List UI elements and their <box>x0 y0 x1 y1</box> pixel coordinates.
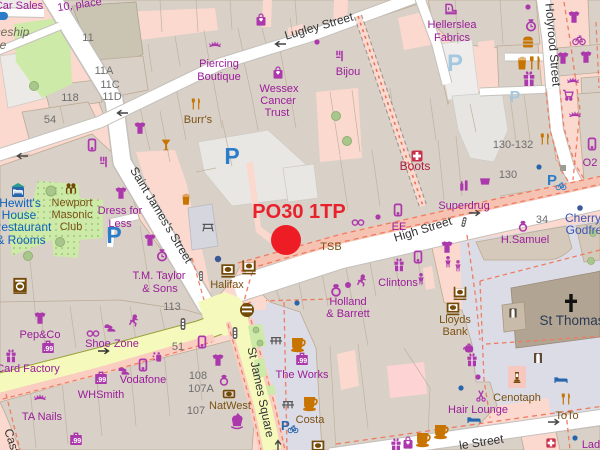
svg-text:e: e <box>0 38 7 52</box>
svg-text:Hair Lounge: Hair Lounge <box>448 404 508 416</box>
svg-text:130-132: 130-132 <box>493 139 533 151</box>
svg-text:TA Nails: TA Nails <box>22 411 63 423</box>
svg-text:WHSmith: WHSmith <box>78 389 124 401</box>
svg-text:11D: 11D <box>102 91 121 103</box>
svg-text:TSB: TSB <box>320 241 341 253</box>
svg-text:T.M. Taylor: T.M. Taylor <box>133 270 186 282</box>
svg-text:Fabrics: Fabrics <box>434 32 471 44</box>
svg-text:Club: Club <box>60 221 83 233</box>
svg-text:Newport: Newport <box>52 197 93 209</box>
svg-text:EE: EE <box>392 221 407 233</box>
svg-text:11: 11 <box>82 32 93 44</box>
svg-text:ToTo: ToTo <box>555 410 578 422</box>
svg-text:Cenotaph: Cenotaph <box>493 392 541 404</box>
svg-text:Shoe Zone: Shoe Zone <box>85 338 139 350</box>
svg-text:Less: Less <box>108 218 132 230</box>
svg-text:P: P <box>281 418 290 433</box>
svg-text:Holland: Holland <box>329 296 366 308</box>
svg-text:Dress for: Dress for <box>98 205 143 217</box>
svg-text:11A: 11A <box>95 65 114 77</box>
svg-text:Masonic: Masonic <box>52 209 93 221</box>
svg-text:P: P <box>224 143 239 169</box>
svg-text:P: P <box>547 172 557 189</box>
svg-text:P: P <box>447 50 463 77</box>
svg-text:Wessex: Wessex <box>260 83 299 95</box>
svg-text:Clintons: Clintons <box>378 277 418 289</box>
svg-text:Lad: Lad <box>582 439 600 450</box>
svg-text:34: 34 <box>536 214 548 226</box>
svg-text:Boutique: Boutique <box>197 71 240 83</box>
svg-text:Bank: Bank <box>442 326 468 338</box>
svg-text:54: 54 <box>44 114 56 126</box>
svg-text:NatWest: NatWest <box>209 400 251 412</box>
svg-text:& Sons: & Sons <box>142 283 178 295</box>
svg-text:Trust: Trust <box>265 107 290 119</box>
svg-text:Restaurant: Restaurant <box>0 220 52 234</box>
svg-text:113: 113 <box>163 301 181 313</box>
svg-text:ceship: ceship <box>0 25 30 39</box>
svg-text:Hellerslea: Hellerslea <box>428 19 478 31</box>
svg-text:Lloyds: Lloyds <box>439 314 471 326</box>
svg-text:PO30 1TP: PO30 1TP <box>252 201 345 223</box>
svg-text:107: 107 <box>187 405 205 417</box>
svg-text:Godfrey: Godfrey <box>566 223 600 237</box>
svg-text:Card Factory: Card Factory <box>0 363 60 375</box>
svg-text:51: 51 <box>172 341 184 353</box>
svg-text:Superdrug: Superdrug <box>438 200 489 212</box>
svg-text:108: 108 <box>189 370 207 382</box>
svg-text:H.Samuel: H.Samuel <box>501 234 549 246</box>
svg-text:P: P <box>510 89 521 106</box>
svg-text:Pep&Co: Pep&Co <box>20 329 61 341</box>
svg-text:11C: 11C <box>100 79 119 91</box>
svg-text:Piercing: Piercing <box>199 58 239 70</box>
svg-text:& Rooms: & Rooms <box>0 233 46 247</box>
svg-text:Cancer: Cancer <box>260 95 296 107</box>
svg-text:O2: O2 <box>583 157 598 169</box>
svg-text:Bijou: Bijou <box>336 66 360 78</box>
svg-text:107A: 107A <box>188 383 214 395</box>
svg-text:Car Sales: Car Sales <box>0 0 44 12</box>
svg-text:Burr's: Burr's <box>184 114 213 126</box>
svg-text:Boots: Boots <box>400 159 431 173</box>
svg-text:Halifax: Halifax <box>210 279 244 291</box>
svg-text:118: 118 <box>61 92 79 104</box>
svg-text:The Works: The Works <box>276 369 329 381</box>
svg-text:130: 130 <box>499 169 517 181</box>
svg-text:St Thomas: St Thomas <box>539 313 600 328</box>
svg-text:& Barrett: & Barrett <box>326 308 369 320</box>
svg-text:Vodafone: Vodafone <box>120 374 167 386</box>
svg-text:Costa: Costa <box>296 414 326 426</box>
